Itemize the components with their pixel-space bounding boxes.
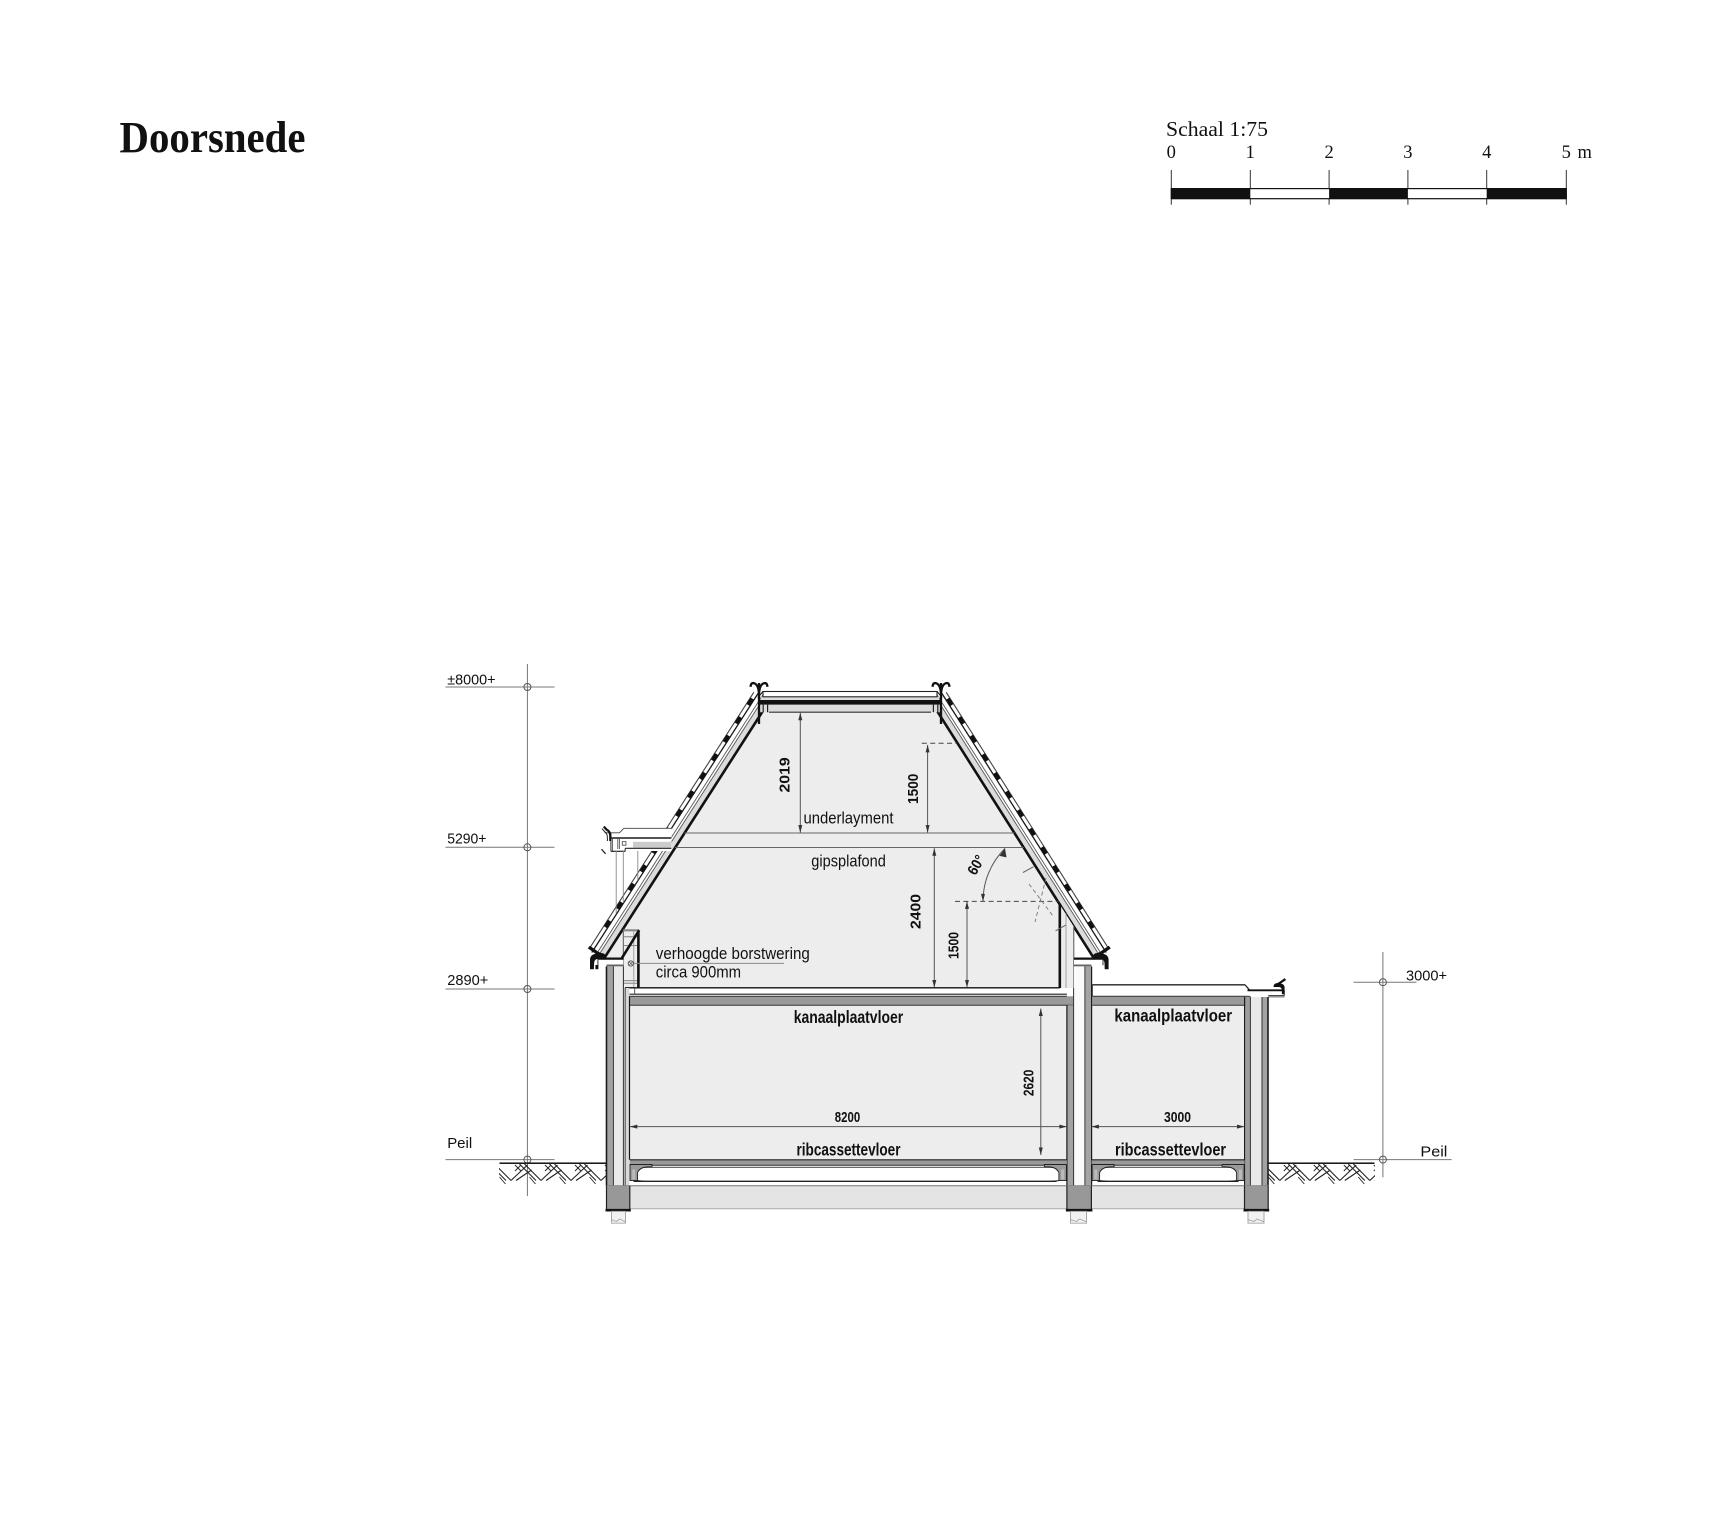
- svg-text:Doorsnede: Doorsnede: [120, 113, 306, 162]
- svg-text:3: 3: [1403, 143, 1412, 163]
- svg-text:Peil: Peil: [447, 1135, 472, 1152]
- svg-text:3000: 3000: [1164, 1109, 1191, 1126]
- svg-text:±8000+: ±8000+: [447, 672, 496, 689]
- svg-text:ribcassettevloer: ribcassettevloer: [1115, 1139, 1226, 1159]
- svg-text:3000+: 3000+: [1406, 968, 1447, 985]
- svg-text:ribcassettevloer: ribcassettevloer: [797, 1139, 901, 1159]
- svg-text:m: m: [1578, 143, 1593, 163]
- svg-text:Schaal 1:75: Schaal 1:75: [1166, 117, 1268, 141]
- svg-text:gipsplafond: gipsplafond: [811, 852, 886, 871]
- svg-text:8200: 8200: [835, 1109, 860, 1126]
- svg-text:2400: 2400: [908, 894, 925, 929]
- svg-text:1500: 1500: [946, 932, 963, 959]
- svg-text:4: 4: [1482, 143, 1491, 163]
- svg-text:1500: 1500: [905, 774, 922, 804]
- svg-text:verhoogde borstwering: verhoogde borstwering: [656, 944, 810, 963]
- svg-text:kanaalplaatvloer: kanaalplaatvloer: [1114, 1006, 1232, 1026]
- svg-text:Peil: Peil: [1420, 1144, 1447, 1161]
- svg-text:1: 1: [1246, 143, 1255, 163]
- svg-text:5290+: 5290+: [447, 830, 487, 847]
- svg-text:0: 0: [1167, 143, 1176, 163]
- svg-text:kanaalplaatvloer: kanaalplaatvloer: [794, 1007, 904, 1027]
- svg-text:2: 2: [1324, 143, 1333, 163]
- svg-text:5: 5: [1562, 143, 1571, 163]
- svg-text:2890+: 2890+: [447, 972, 488, 989]
- svg-text:2019: 2019: [777, 757, 794, 792]
- svg-text:circa 900mm: circa 900mm: [656, 963, 741, 982]
- svg-text:2620: 2620: [1020, 1070, 1037, 1096]
- svg-text:underlayment: underlayment: [804, 809, 894, 828]
